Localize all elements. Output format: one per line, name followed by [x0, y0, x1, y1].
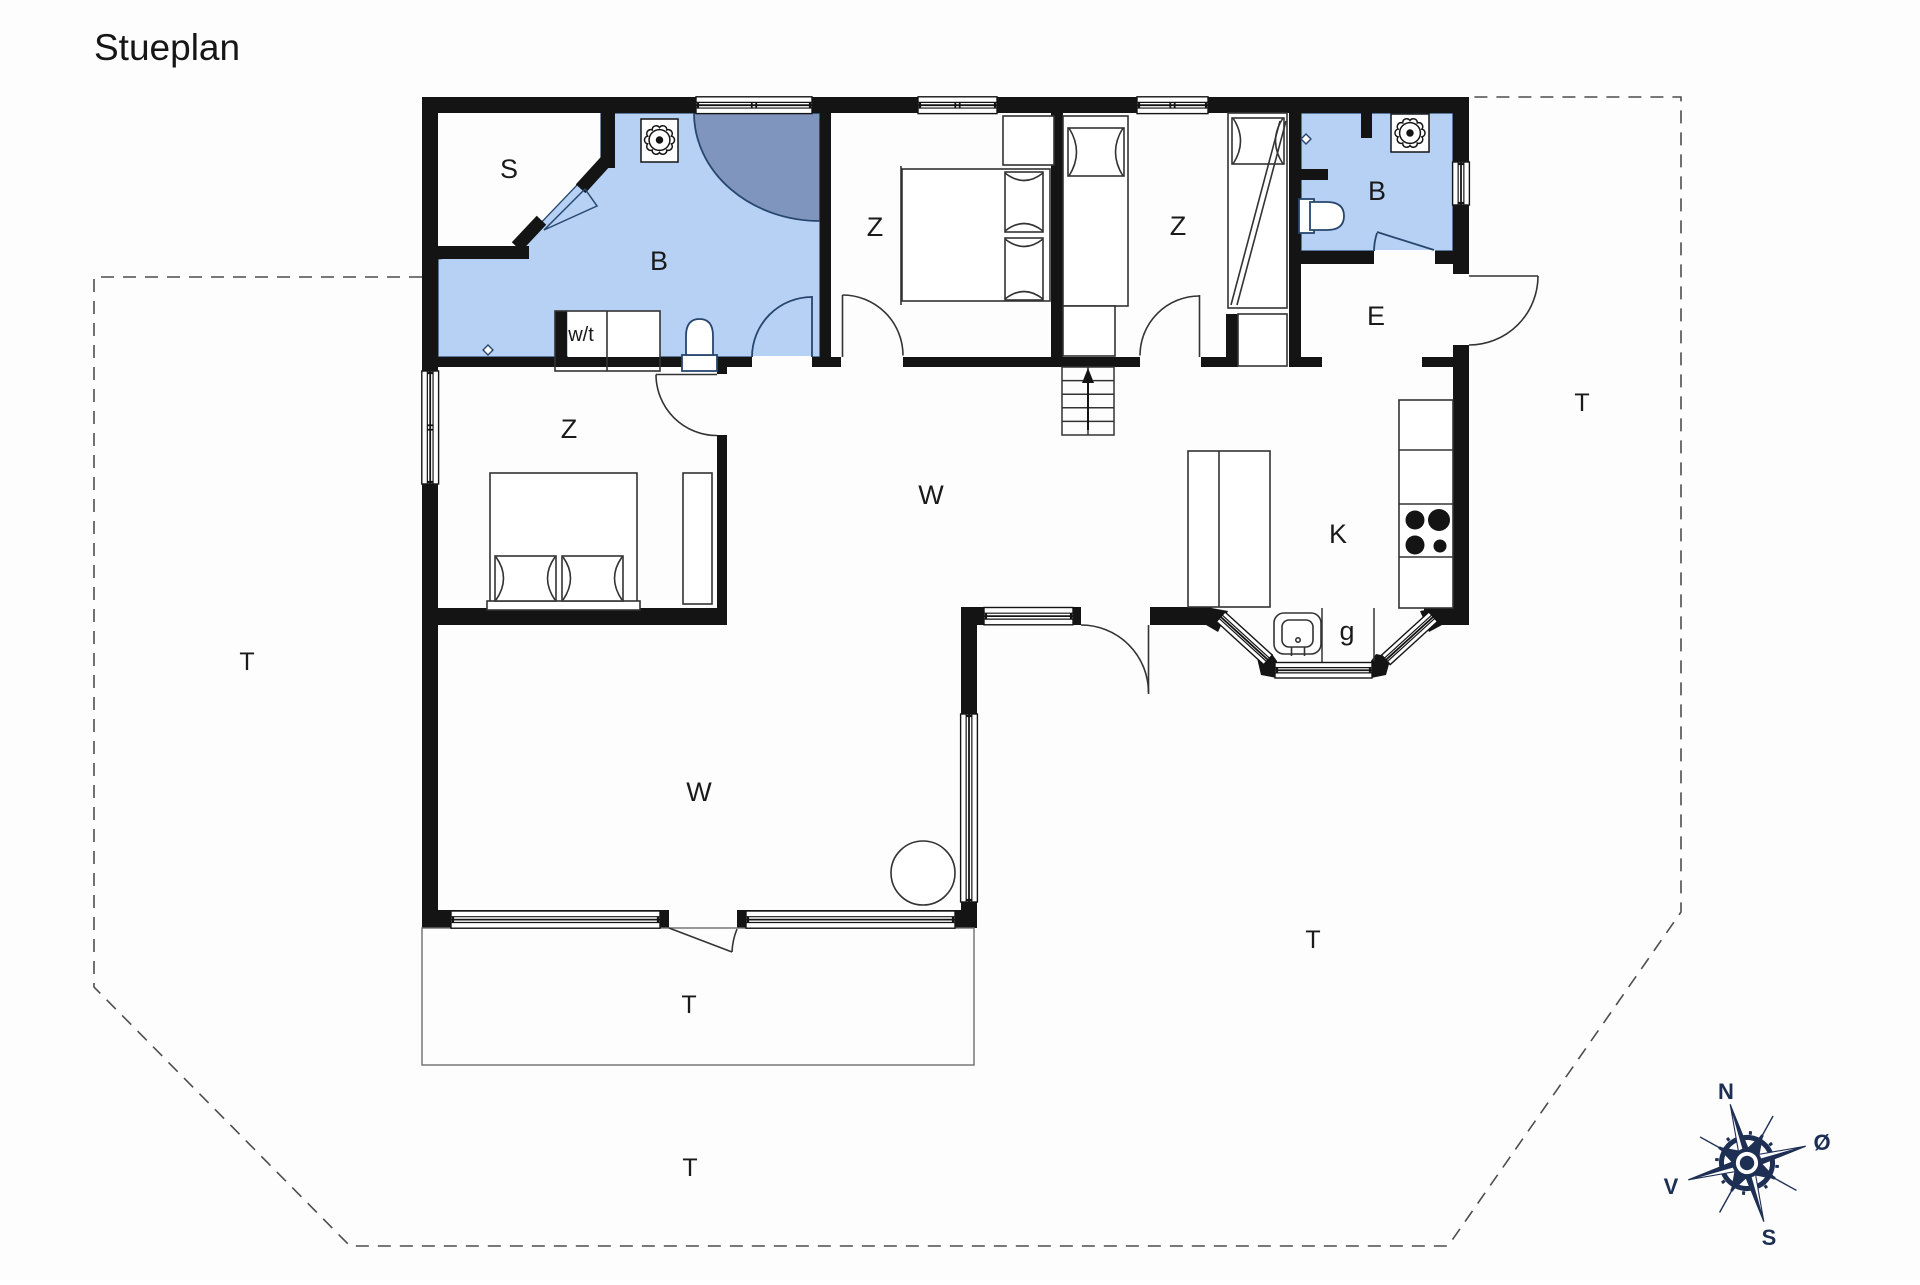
svg-text:E: E	[1367, 301, 1385, 331]
svg-text:W: W	[918, 480, 944, 510]
svg-text:N: N	[1718, 1079, 1734, 1104]
svg-text:S: S	[1762, 1225, 1777, 1250]
svg-text:B: B	[1368, 176, 1386, 206]
svg-text:Z: Z	[867, 212, 884, 242]
svg-text:Z: Z	[561, 414, 578, 444]
svg-text:T: T	[681, 991, 696, 1019]
svg-text:W: W	[686, 777, 712, 807]
svg-text:w/t: w/t	[567, 324, 594, 346]
svg-text:T: T	[682, 1154, 697, 1182]
svg-text:Z: Z	[1170, 211, 1187, 241]
svg-text:Ø: Ø	[1813, 1130, 1830, 1155]
svg-text:T: T	[1574, 389, 1589, 417]
svg-text:B: B	[650, 246, 668, 276]
svg-text:g: g	[1339, 616, 1354, 646]
svg-text:S: S	[500, 154, 518, 184]
svg-text:T: T	[239, 648, 254, 676]
svg-text:Stueplan: Stueplan	[94, 27, 240, 68]
svg-text:T: T	[1305, 926, 1320, 954]
svg-text:V: V	[1664, 1174, 1679, 1199]
svg-text:K: K	[1329, 519, 1347, 549]
